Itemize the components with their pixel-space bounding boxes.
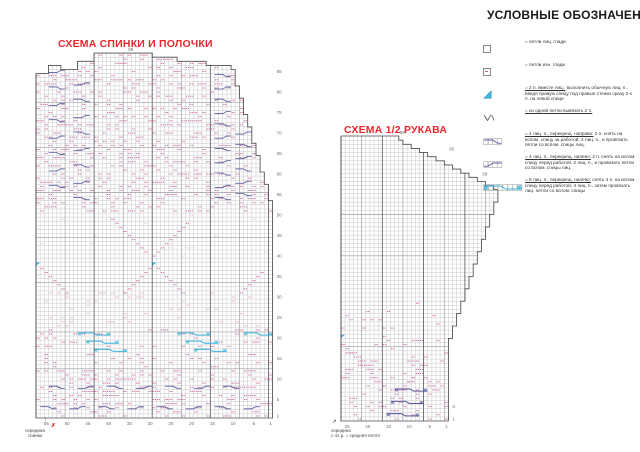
svg-text:65: 65 (277, 151, 283, 156)
svg-text:1: 1 (277, 414, 280, 419)
svg-text:50: 50 (277, 213, 283, 218)
svg-text:5: 5 (277, 397, 280, 402)
sleeve-center-arrow-icon: ↗ (332, 419, 337, 425)
knitting-pattern-page: 5550454035302520151051151015202530354045… (0, 0, 640, 452)
svg-text:65: 65 (449, 147, 455, 152)
svg-text:1: 1 (269, 421, 272, 426)
svg-text:15: 15 (277, 356, 283, 361)
cable4-left-icon (483, 154, 525, 173)
legend-item-text: = 4 лиц. п., перекрещ. направо: 2 п. сня… (525, 131, 637, 150)
svg-text:5: 5 (253, 421, 256, 426)
inc-from-one-icon (483, 108, 525, 127)
legend-item-text: = петли лиц. глади (525, 39, 566, 58)
back-marker-icon: ✗ (51, 423, 56, 429)
svg-text:20: 20 (189, 421, 195, 426)
sleeve-center-label-line2: с 41 р. = средняя петля (331, 433, 421, 438)
sleeve-center-label: середина с 41 р. = средняя петля (331, 428, 421, 439)
purl-stitch-icon (483, 62, 525, 81)
svg-text:25: 25 (277, 315, 283, 320)
svg-text:1: 1 (452, 417, 455, 422)
svg-text:80: 80 (277, 90, 283, 95)
svg-text:45: 45 (85, 421, 91, 426)
svg-text:40: 40 (277, 254, 283, 259)
svg-text:60: 60 (277, 172, 283, 177)
legend-item-text: = 8 лиц. п., перекрещ. налево: снять 4 п… (525, 177, 637, 196)
cable4-right-icon (483, 131, 525, 150)
legend-item-text: = 2 п. вместе лиц.: выполнить обычную ли… (525, 85, 637, 104)
back-center-label-line2: спинки (16, 433, 54, 438)
svg-text:15: 15 (210, 421, 216, 426)
knit-stitch-icon (483, 39, 525, 58)
svg-text:75: 75 (277, 110, 283, 115)
back-center-arrow-icon: ↑ (44, 416, 47, 423)
svg-text:85: 85 (277, 69, 283, 74)
svg-text:45: 45 (277, 233, 283, 238)
svg-text:30: 30 (277, 295, 283, 300)
svg-text:55: 55 (277, 192, 283, 197)
legend-item-purl: = петли изн. глади (483, 62, 637, 81)
legend-panel: УСЛОВНЫЕ ОБОЗНАЧЕНИЯ = петли лиц. глади … (483, 8, 637, 200)
legend-item-cable8-left: = 8 лиц. п., перекрещ. налево: снять 4 п… (483, 177, 637, 196)
legend-item-knit: = петли лиц. глади (483, 39, 637, 58)
sleeve-chart-title: СХЕМА 1/2 РУКАВА (344, 124, 447, 136)
svg-text:3: 3 (452, 404, 455, 409)
svg-text:50: 50 (65, 421, 71, 426)
svg-text:25: 25 (168, 421, 174, 426)
legend-item-cable4-left: = 4 лиц. п., перекрещ. налево: 2 п. снят… (483, 154, 637, 173)
svg-text:30: 30 (148, 421, 154, 426)
sleeve-chart: 252015105131696559 (341, 130, 498, 429)
back-front-chart-title: СХЕМА СПИНКИ И ПОЛОЧКИ (58, 38, 213, 50)
svg-text:10: 10 (277, 377, 283, 382)
svg-text:20: 20 (277, 336, 283, 341)
svg-text:70: 70 (277, 131, 283, 136)
k2tog-triangle-icon (483, 85, 525, 104)
svg-text:5: 5 (429, 424, 432, 429)
legend-title: УСЛОВНЫЕ ОБОЗНАЧЕНИЯ (487, 8, 637, 22)
cable8-left-icon (483, 177, 525, 196)
legend-item-text: = 4 лиц. п., перекрещ. налево: 2 п. снят… (525, 154, 637, 173)
legend-item-inc: = из одной петли вывязать 2 п. (483, 108, 637, 127)
svg-text:1: 1 (445, 424, 448, 429)
svg-text:10: 10 (231, 421, 237, 426)
svg-text:35: 35 (277, 274, 283, 279)
legend-item-cable4-right: = 4 лиц. п., перекрещ. направо: 2 п. сня… (483, 131, 637, 150)
legend-item-k2tog: = 2 п. вместе лиц.: выполнить обычную ли… (483, 85, 637, 104)
legend-item-text: = из одной петли вывязать 2 п. (525, 108, 592, 127)
svg-text:35: 35 (127, 421, 133, 426)
back-front-chart: 5550454035302520151051151015202530354045… (36, 47, 282, 426)
legend-item-text: = петли изн. глади (525, 62, 565, 81)
svg-text:40: 40 (106, 421, 112, 426)
back-center-label: середина спинки (16, 428, 54, 439)
